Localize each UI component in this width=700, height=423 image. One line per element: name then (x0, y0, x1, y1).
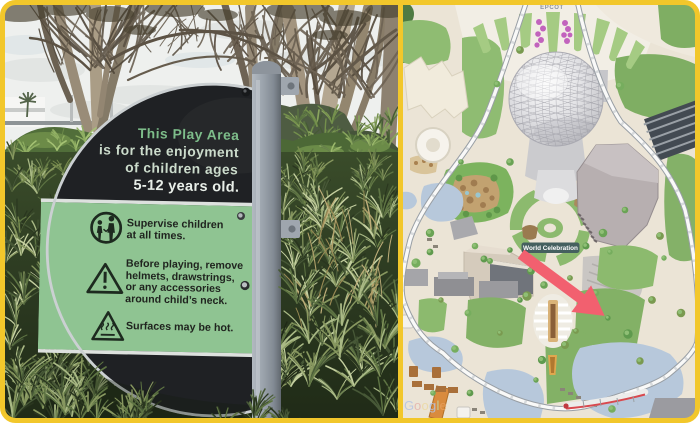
svg-text:is for the enjoyment: is for the enjoyment (99, 142, 239, 160)
svg-text:e: e (440, 398, 447, 413)
svg-text:Surfaces may be hot.: Surfaces may be hot. (126, 320, 234, 334)
svg-text:at all times.: at all times. (126, 229, 185, 242)
svg-text:G: G (404, 398, 414, 413)
svg-text:o: o (414, 398, 421, 413)
svg-text:EPCOT: EPCOT (540, 5, 564, 11)
svg-text:This Play Area: This Play Area (138, 126, 240, 143)
svg-text:of children ages: of children ages (125, 160, 238, 177)
svg-text:around child’s neck.: around child’s neck. (125, 293, 227, 307)
svg-text:o: o (422, 398, 429, 413)
svg-text:g: g (429, 398, 436, 413)
svg-text:World Celebration: World Celebration (523, 245, 578, 252)
svg-text:5-12 years old.: 5-12 years old. (133, 178, 239, 196)
